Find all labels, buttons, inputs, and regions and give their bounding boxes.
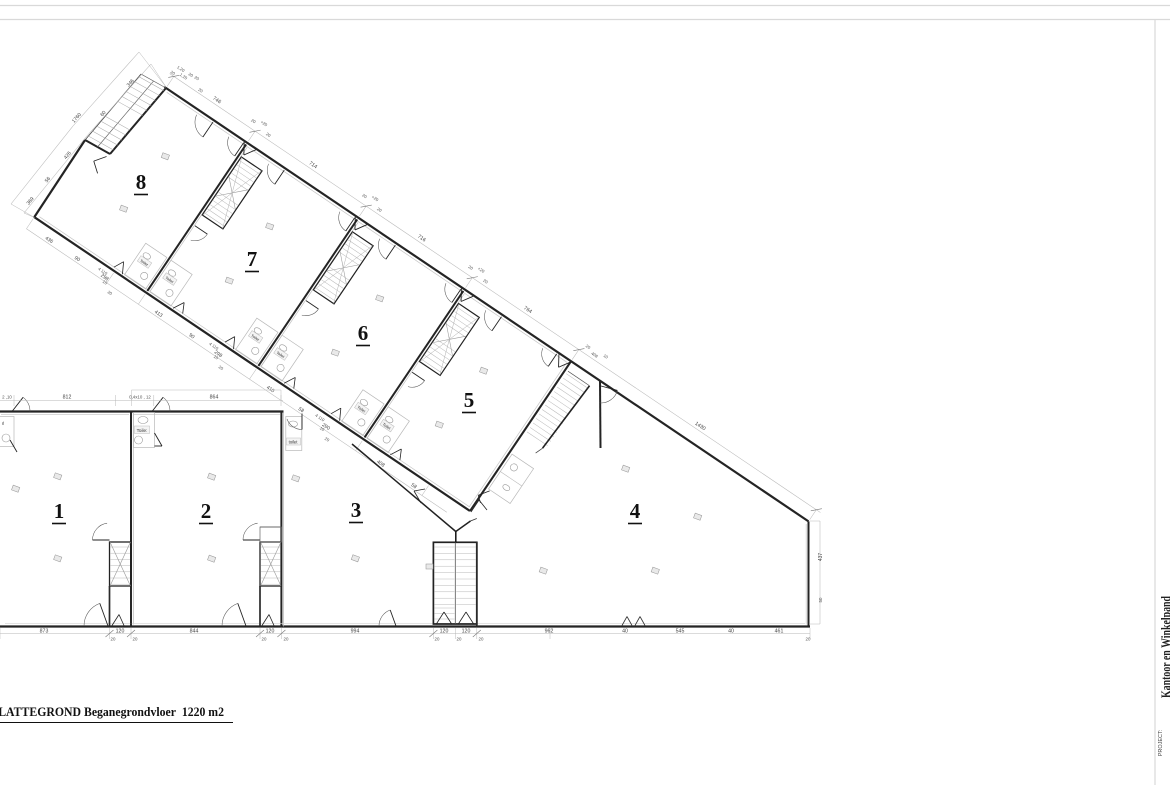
svg-text:40: 40 bbox=[622, 629, 628, 635]
svg-text:rl: rl bbox=[2, 421, 4, 426]
svg-text:20: 20 bbox=[806, 637, 811, 642]
svg-text:3: 3 bbox=[351, 498, 362, 522]
svg-text:PLATTEGROND Beganegrondvloer: PLATTEGROND Beganegrondvloer 1220 m2 bbox=[0, 705, 224, 719]
svg-text:20: 20 bbox=[133, 637, 138, 642]
svg-text:120: 120 bbox=[462, 629, 471, 635]
svg-text:20: 20 bbox=[435, 637, 440, 642]
svg-text:844: 844 bbox=[190, 629, 199, 635]
svg-text:20: 20 bbox=[479, 637, 484, 642]
svg-text:Kantoor en Winkelpand: Kantoor en Winkelpand bbox=[1159, 596, 1170, 698]
svg-text:2: 2 bbox=[201, 499, 212, 523]
svg-text:20: 20 bbox=[262, 637, 267, 642]
svg-text:120: 120 bbox=[116, 629, 125, 635]
svg-text:40: 40 bbox=[728, 629, 734, 635]
svg-text:864: 864 bbox=[210, 395, 219, 401]
svg-text:812: 812 bbox=[63, 395, 72, 401]
svg-text:7: 7 bbox=[247, 247, 258, 271]
svg-text:5: 5 bbox=[464, 388, 475, 412]
svg-text:0,4x10 , 12: 0,4x10 , 12 bbox=[129, 394, 151, 399]
svg-text:461: 461 bbox=[775, 629, 784, 635]
svg-text:6: 6 bbox=[358, 321, 369, 345]
svg-text:1: 1 bbox=[54, 499, 65, 523]
svg-text:2 ,10: 2 ,10 bbox=[2, 395, 12, 400]
svg-text:873: 873 bbox=[40, 629, 49, 635]
svg-text:994: 994 bbox=[351, 629, 360, 635]
svg-text:20: 20 bbox=[284, 637, 289, 642]
svg-text:50: 50 bbox=[818, 597, 823, 602]
svg-text:20: 20 bbox=[457, 637, 462, 642]
svg-text:Toile:: Toile: bbox=[137, 428, 148, 433]
svg-text:toilet: toilet bbox=[289, 440, 299, 445]
svg-text:120: 120 bbox=[266, 629, 275, 635]
svg-text:120: 120 bbox=[440, 629, 449, 635]
svg-text:20: 20 bbox=[111, 637, 116, 642]
svg-text:8: 8 bbox=[136, 170, 147, 194]
svg-text:PROJECT:: PROJECT: bbox=[1158, 729, 1164, 756]
svg-text:437: 437 bbox=[818, 553, 824, 562]
svg-text:962: 962 bbox=[545, 629, 554, 635]
svg-text:545: 545 bbox=[676, 629, 685, 635]
svg-text:4: 4 bbox=[630, 499, 641, 523]
